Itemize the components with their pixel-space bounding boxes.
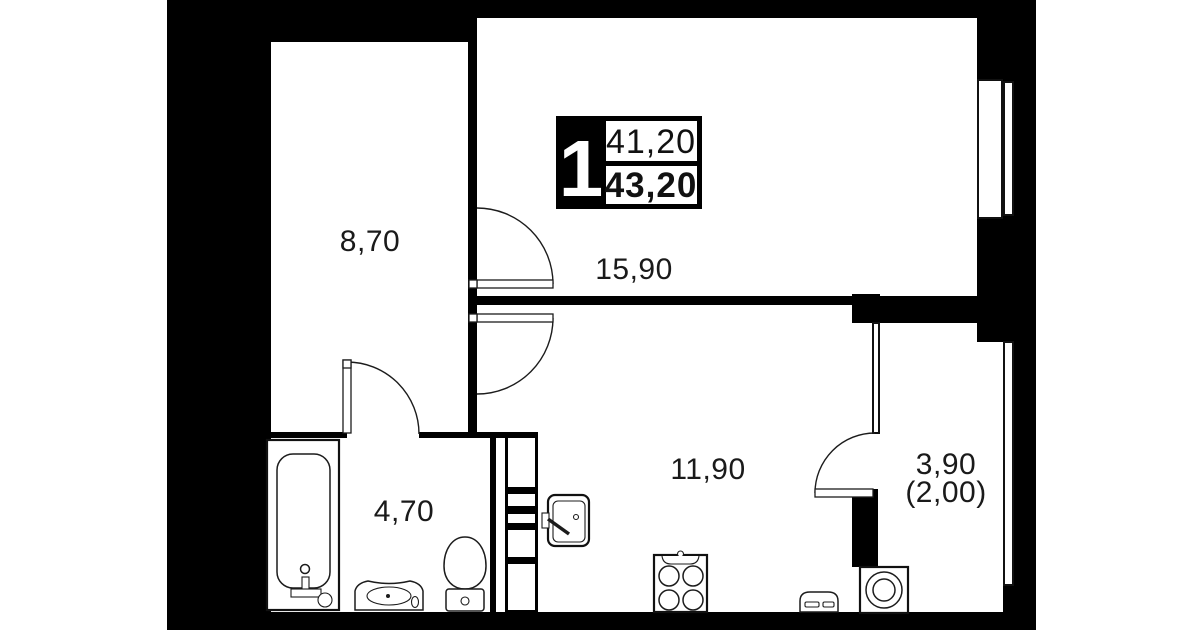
stove-burner xyxy=(683,590,703,610)
badge-rooms-count: 1 xyxy=(559,124,604,213)
bathtub-faucet-bar xyxy=(291,589,321,597)
floor-plan: 1 41,20 43,20 8,70 15,90 11,90 4,70 3,90… xyxy=(0,0,1201,630)
badge-living-area: 41,20 xyxy=(606,123,696,161)
washing-machine-icon xyxy=(860,567,908,613)
kitchen-balcony-window-icon xyxy=(873,323,879,433)
door-leaf xyxy=(343,360,351,433)
balcony-door-hinge-post xyxy=(873,489,878,503)
wall-living-kitchen xyxy=(477,296,852,305)
shaft-cell xyxy=(508,494,535,506)
floor-plan-drawing: 1 41,20 43,20 8,70 15,90 11,90 4,70 3,90… xyxy=(0,0,1201,630)
door-leaf xyxy=(815,489,873,497)
sink-knob xyxy=(574,515,579,520)
door-hinge xyxy=(469,314,477,322)
door-hinge xyxy=(469,280,477,288)
wall-bathroom-right xyxy=(490,438,496,612)
bathtub-faucet-stem xyxy=(302,577,309,590)
wall-hallway-living xyxy=(468,18,477,205)
badge-total-area: 43,20 xyxy=(605,166,698,205)
bathroom-side-gap xyxy=(496,438,505,612)
vanity-sink-icon xyxy=(355,581,423,610)
stove-burner xyxy=(683,566,703,586)
stove-icon xyxy=(654,551,707,612)
shaft-cell xyxy=(508,564,535,610)
door-leaf xyxy=(477,280,553,288)
bathtub-faucet-knob xyxy=(318,593,332,607)
shaft-cell xyxy=(508,514,535,523)
door-hinge xyxy=(343,360,351,368)
living-window-icon xyxy=(978,80,1002,218)
bathtub-drain xyxy=(301,565,310,574)
shaft-cell xyxy=(508,530,535,557)
shaft-cell xyxy=(508,438,535,487)
shaft-duct xyxy=(505,433,538,612)
door-leaf xyxy=(477,314,553,322)
unit-badge: 1 41,20 43,20 xyxy=(556,116,702,213)
stove-burner xyxy=(659,566,679,586)
toilet-button xyxy=(461,597,469,605)
vanity-faucet xyxy=(412,597,419,608)
wall-block-balcony-bottom xyxy=(852,495,878,567)
balcony-door-opening xyxy=(873,433,880,489)
wall-door-post xyxy=(468,287,477,314)
wall-block-balcony-top xyxy=(852,294,880,323)
label-hallway-area: 8,70 xyxy=(340,225,400,258)
bathroom-door-opening xyxy=(347,432,419,438)
sink-basin xyxy=(553,501,585,542)
stove-handle xyxy=(662,556,699,564)
wall-step-right xyxy=(977,290,1036,342)
balcony-glazing-icon xyxy=(1004,342,1013,585)
appliance-slot xyxy=(805,602,819,607)
wall-hallway-kitchen xyxy=(468,396,477,432)
toilet-icon xyxy=(444,537,486,611)
stove-burner xyxy=(659,590,679,610)
room-living-floor xyxy=(477,18,977,296)
living-window-sill-icon xyxy=(1004,82,1013,215)
label-bathroom-area: 4,70 xyxy=(374,495,434,528)
label-kitchen-area: 11,90 xyxy=(670,453,745,486)
toilet-bowl xyxy=(444,537,486,589)
label-balcony-area-reduced: (2,00) xyxy=(905,476,986,509)
wall-bathroom-top-left xyxy=(271,432,347,438)
washer-drum xyxy=(873,579,895,601)
bathtub-icon xyxy=(267,440,339,610)
vanity-drain xyxy=(386,594,390,598)
kitchen-sink-icon xyxy=(542,495,589,546)
appliance-slot xyxy=(823,602,834,607)
label-living-area: 15,90 xyxy=(595,253,673,286)
kitchen-appliance-icon xyxy=(800,592,838,612)
